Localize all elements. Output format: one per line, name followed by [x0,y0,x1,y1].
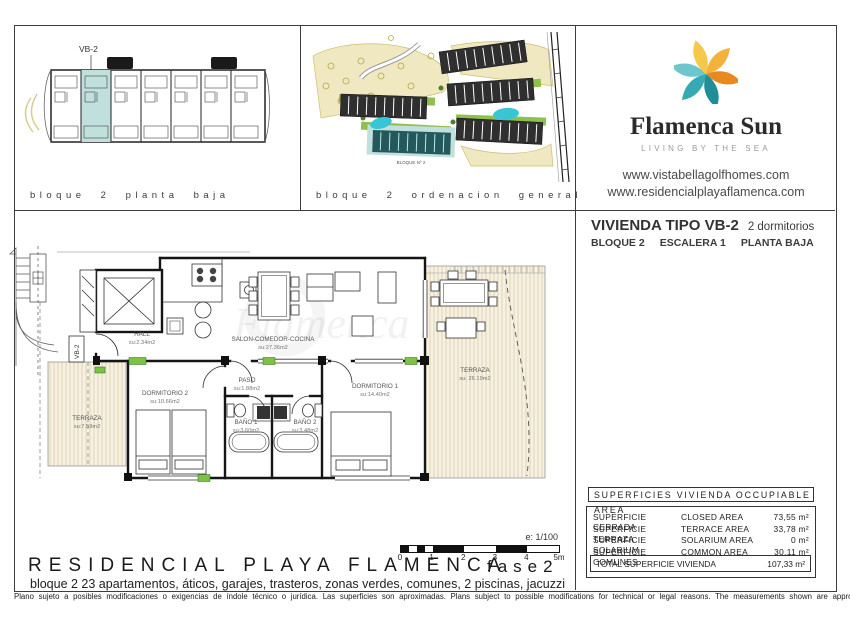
project-description: bloque 2 23 apartamentos, áticos, garaje… [30,577,565,591]
unit-tag: VB-2 [69,336,84,362]
table-row: SUPERFICIE TERRAZA TERRACE AREA 33,78 m² [593,524,809,536]
svg-text:su: 26.19m2: su: 26.19m2 [459,376,490,382]
roof-block [107,57,133,69]
room-label-terraza-der: TERRAZA [460,367,490,374]
terrain-arc [31,94,39,130]
bloque2-label: BLOQUE Nº 2 [397,160,426,165]
table-row: SUPERFICIE CERRADA CLOSED AREA 73,55 m² [593,512,809,524]
room-label-hall: HALL [134,331,150,338]
sun-pinwheel-icon [674,40,738,104]
unit-type-title: VIVIENDA TIPO VB-2 [591,217,739,234]
room-label-salon: SALON-COMEDOR-COCINA [232,336,316,343]
room-label-bano2: BAÑO 2 [293,417,317,426]
roof-block [211,57,237,69]
website-link-2[interactable]: www.residencialplayaflamenca.com [576,184,836,201]
block-plan-drawing: VB-2 [15,26,299,186]
room-label-bano1: BAÑO 1 [234,417,258,426]
table-row: SUPERFICIE SOLARIUM SOLARIUM AREA 0 m² [593,535,809,547]
unit-bedrooms: 2 dormitorios [748,221,814,233]
unit-stair: ESCALERA 1 [660,237,726,249]
block-plan-caption: bloque 2 planta baja [30,190,230,201]
svg-text:su:10.66m2: su:10.66m2 [150,399,180,405]
unit-floor: PLANTA BAJA [741,237,814,249]
scale-note: e: 1/100 [498,532,558,542]
svg-text:su:1.88m2: su:1.88m2 [234,386,261,392]
unit-callout-label: VB-2 [79,44,98,54]
svg-text:su:14.40m2: su:14.40m2 [360,392,390,398]
bloque2-building [372,130,451,155]
common-staircase [10,246,58,376]
project-title: RESIDENCIAL PLAYA FLAMENCA [28,555,507,577]
site-plan-caption: bloque 2 ordenacion general [316,190,582,201]
scale-bar [400,545,560,553]
areas-table-header: SUPERFICIES VIVIENDA OCCUPIABLE AREA [588,487,814,502]
room-label-dormitorio2: DORMITORIO 2 [142,390,189,397]
svg-text:su:3.60m2: su:3.60m2 [233,428,260,434]
room-label-paso: PASO [238,377,255,384]
areas-table-total: TOTAL SUPERFICIE VIVIENDA 107,33 m² [590,555,811,572]
highlighted-unit [81,70,111,142]
website-link-1[interactable]: www.vistabellagolfhomes.com [576,167,836,184]
svg-text:VB-2: VB-2 [74,344,81,359]
unit-block: BLOQUE 2 [591,237,645,249]
project-phase: fase2 [487,557,559,577]
brand-name: Flamenca Sun [576,113,836,141]
brand-block: Flamenca Sun LIVING BY THE SEA www.vista… [576,40,836,201]
floor-plan-drawing: Flamenca Sun [0,246,575,510]
legal-disclaimer: Plano sujeto a posibles modificaciones o… [14,592,836,601]
room-label-dormitorio1: DORMITORIO 1 [352,383,399,390]
header-divider [14,210,835,211]
room-label-terraza-izq: TERRAZA [72,415,102,422]
brand-tagline: LIVING BY THE SEA [576,144,836,153]
plan-sheet: VB-2 bloque 2 planta baja [0,0,850,620]
unit-header: VIVIENDA TIPO VB-2 2 dormitorios BLOQUE … [591,217,831,249]
svg-text:su:2.34m2: su:2.34m2 [129,340,156,346]
svg-text:su:3.48m2: su:3.48m2 [292,428,319,434]
svg-text:su:27.36m2: su:27.36m2 [258,345,288,351]
svg-text:su:7.59m2: su:7.59m2 [74,424,101,430]
site-plan-drawing: BLOQUE Nº 2 [301,26,574,186]
